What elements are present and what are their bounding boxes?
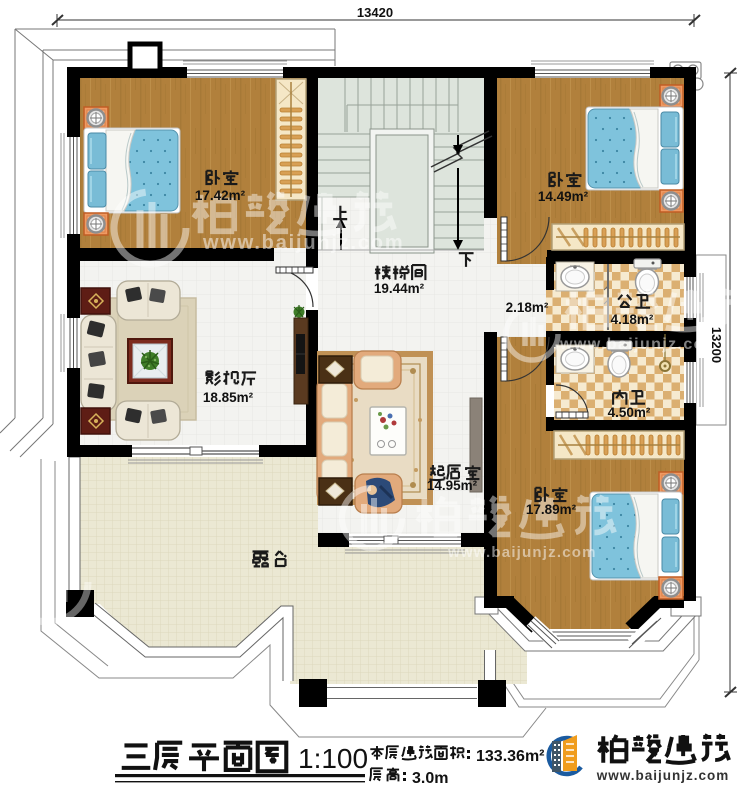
svg-text:17.89m²: 17.89m² [526, 502, 577, 517]
svg-text:1:100: 1:100 [298, 743, 368, 774]
svg-text:13200: 13200 [709, 327, 724, 363]
svg-text:www.baijunjz.com: www.baijunjz.com [447, 544, 597, 561]
svg-text:www.baijunjz.com: www.baijunjz.com [202, 232, 404, 254]
svg-text:4.18m²: 4.18m² [611, 312, 654, 327]
svg-text:3.0m: 3.0m [412, 770, 448, 787]
svg-text:4.50m²: 4.50m² [608, 405, 651, 420]
svg-text:18.85m²: 18.85m² [203, 390, 254, 405]
svg-text:14.95m²: 14.95m² [427, 478, 478, 493]
svg-text:13420: 13420 [357, 5, 393, 20]
svg-text:www.baijunjz.com: www.baijunjz.com [596, 768, 730, 783]
svg-text:14.49m²: 14.49m² [538, 189, 589, 204]
svg-text:17.42m²: 17.42m² [195, 188, 246, 203]
svg-text:2.18m²: 2.18m² [506, 300, 549, 315]
svg-text:www.baijunjz.com: www.baijunjz.com [559, 336, 721, 353]
svg-text:133.36m²: 133.36m² [476, 748, 545, 765]
svg-text:19.44m²: 19.44m² [374, 281, 425, 296]
